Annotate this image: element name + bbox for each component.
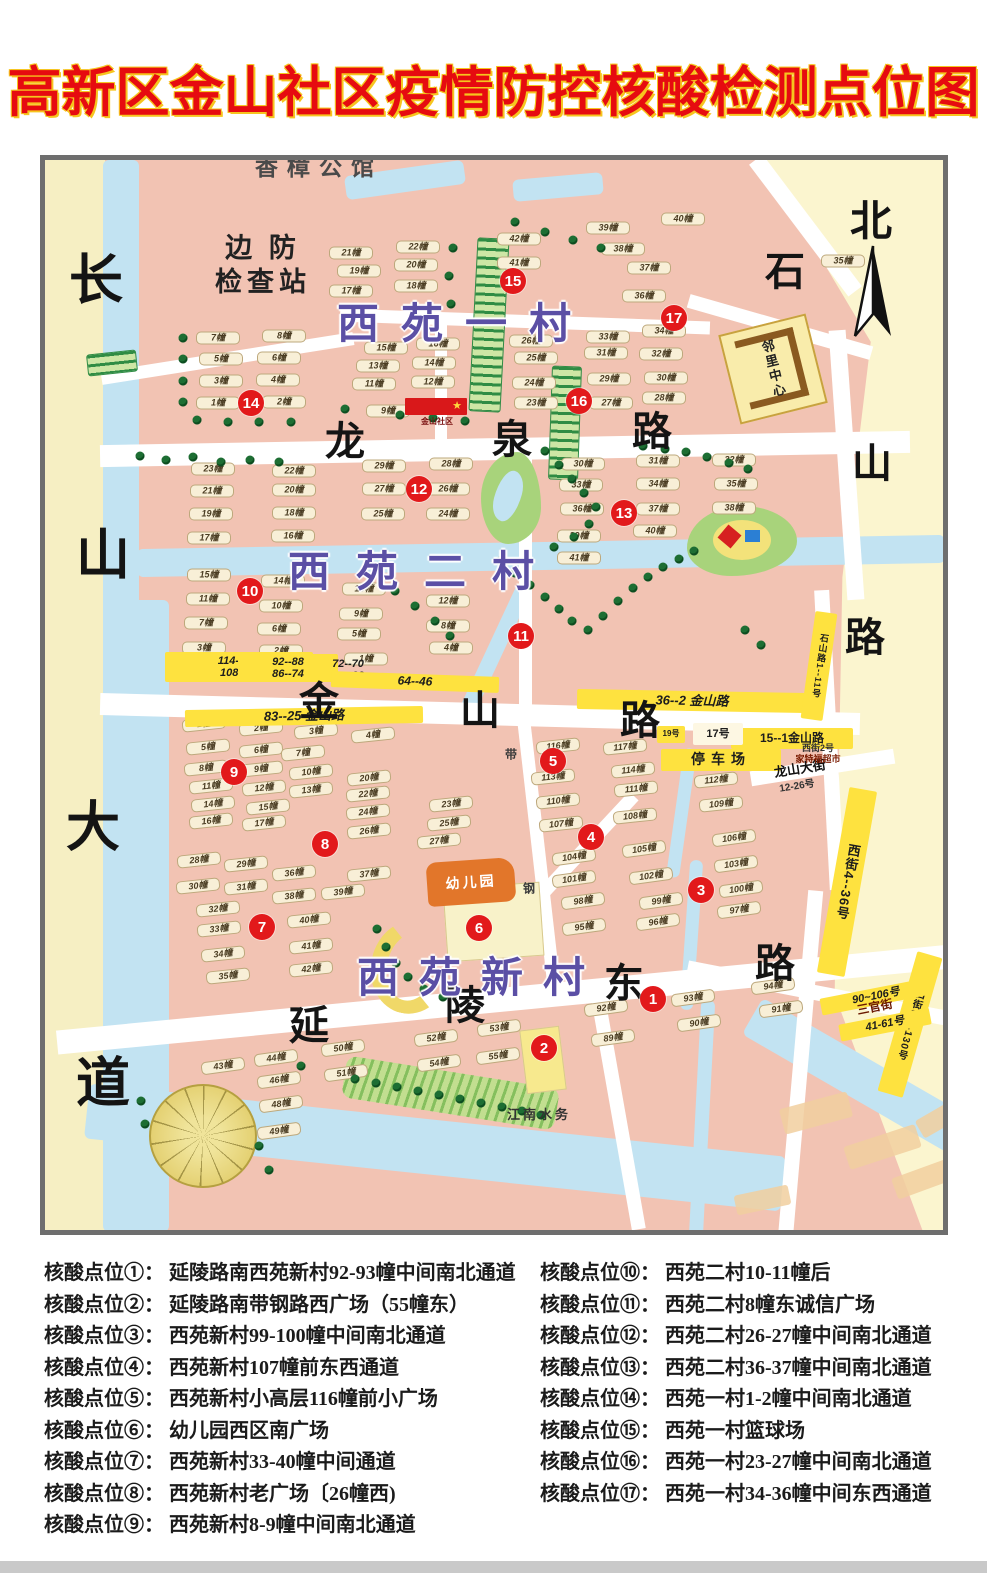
legend-item: 核酸点位⑧： 西苑新村老广场〔26幢西) [44, 1479, 534, 1511]
page-title: 高新区金山社区疫情防控核酸检测点位图 [0, 48, 987, 127]
test-point-3: 3 [688, 877, 714, 903]
test-point-10: 10 [237, 578, 263, 604]
legend-item: 核酸点位③： 西苑新村99-100幢中间南北通道 [44, 1321, 534, 1353]
test-point-17: 17 [661, 305, 687, 331]
test-point-13: 13 [611, 500, 637, 526]
legend-item: 核酸点位⑥： 幼儿园西区南广场 [44, 1416, 534, 1448]
test-point-5: 5 [540, 748, 566, 774]
legend-item: 核酸点位④： 西苑新村107幢前东西通道 [44, 1353, 534, 1385]
legend-item: 核酸点位⑰： 西苑一村34-36幢中间东西通道 [540, 1479, 987, 1511]
legend-item: 核酸点位②： 延陵路南带钢路西广场（55幢东） [44, 1290, 534, 1322]
legend-item: 核酸点位⑬： 西苑二村36-37幢中间南北通道 [540, 1353, 987, 1385]
legend-item: 核酸点位⑨： 西苑新村8-9幢中间南北通道 [44, 1510, 534, 1542]
test-point-16: 16 [566, 388, 592, 414]
legend-item: 核酸点位⑤： 西苑新村小高层116幢前小广场 [44, 1384, 534, 1416]
test-point-4: 4 [578, 824, 604, 850]
legend-item: 核酸点位⑮： 西苑一村篮球场 [540, 1416, 987, 1448]
legend-column-right: 核酸点位⑩： 西苑二村10-11幢后核酸点位⑪： 西苑二村8幢东诚信广场核酸点位… [540, 1258, 987, 1510]
test-point-8: 8 [312, 831, 338, 857]
test-point-14: 14 [238, 390, 264, 416]
bottom-gray-bar [0, 1561, 987, 1573]
legend-item: 核酸点位⑯： 西苑一村23-27幢中间南北通道 [540, 1447, 987, 1479]
legend-item: 核酸点位⑫： 西苑二村26-27幢中间南北通道 [540, 1321, 987, 1353]
test-point-7: 7 [249, 914, 275, 940]
map-canvas: 21幢22幢19幢20幢17幢18幢7幢8幢5幢6幢3幢4幢1幢2幢15幢16幢… [40, 155, 948, 1235]
legend-item: 核酸点位⑦： 西苑新村33-40幢中间通道 [44, 1447, 534, 1479]
test-point-12: 12 [406, 476, 432, 502]
legend-column-left: 核酸点位①： 延陵路南西苑新村92-93幢中间南北通道核酸点位②： 延陵路南带钢… [44, 1258, 534, 1542]
test-point-6: 6 [466, 915, 492, 941]
test-point-1: 1 [640, 986, 666, 1012]
legend-item: 核酸点位⑭： 西苑一村1-2幢中间南北通道 [540, 1384, 987, 1416]
test-point-15: 15 [500, 268, 526, 294]
test-point-11: 11 [508, 623, 534, 649]
test-point-2: 2 [531, 1035, 557, 1061]
test-point-9: 9 [221, 759, 247, 785]
test-points-layer: 1234567891011121314151617 [45, 160, 943, 1230]
legend-item: 核酸点位①： 延陵路南西苑新村92-93幢中间南北通道 [44, 1258, 534, 1290]
legend-item: 核酸点位⑪： 西苑二村8幢东诚信广场 [540, 1290, 987, 1322]
legend-item: 核酸点位⑩： 西苑二村10-11幢后 [540, 1258, 987, 1290]
